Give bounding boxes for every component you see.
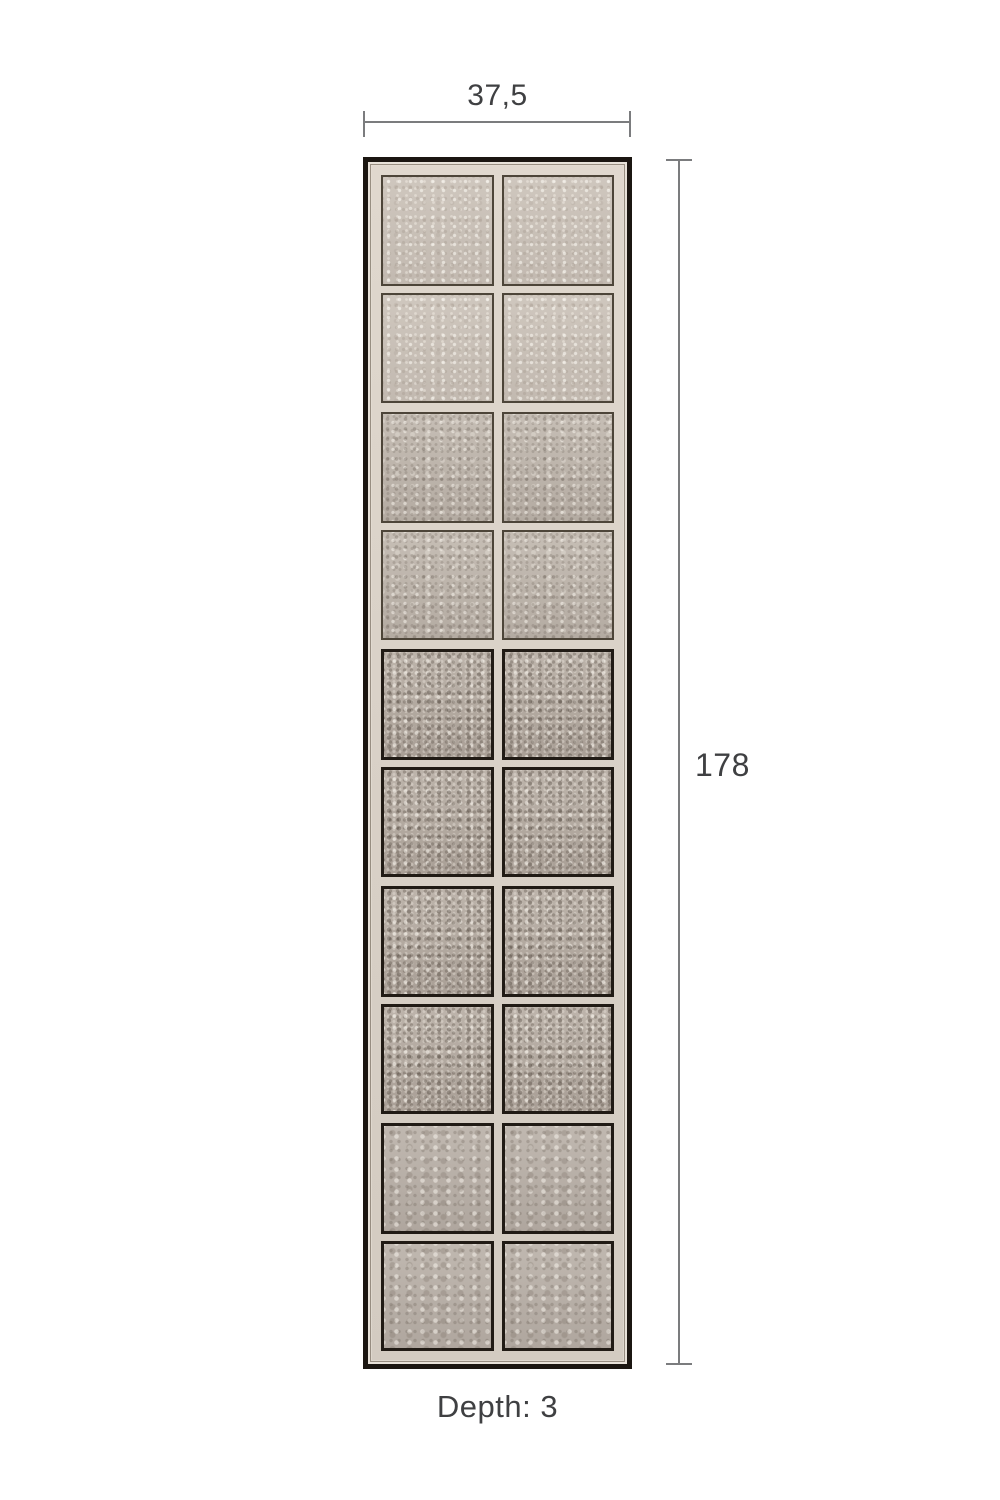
- mirror-pane: [502, 1241, 615, 1352]
- mirror-pane: [381, 293, 494, 404]
- mirror-pane: [381, 649, 494, 760]
- panel-section: [381, 649, 614, 877]
- width-dimension-label: 37,5: [364, 80, 631, 112]
- mirror-pane: [381, 886, 494, 997]
- pane-row: [381, 175, 614, 286]
- mirror-pane: [502, 412, 615, 523]
- mirror-pane: [502, 1123, 615, 1234]
- panel-section: [381, 412, 614, 640]
- diagram-canvas: 37,5 178 Depth: 3: [0, 0, 1000, 1500]
- mirror-pane: [502, 1004, 615, 1115]
- mirror-pane: [381, 530, 494, 641]
- height-dimension-line: [678, 160, 680, 1365]
- width-dimension-tick-right: [629, 111, 631, 137]
- pane-row: [381, 1004, 614, 1115]
- depth-dimension-label: Depth: 3: [339, 1391, 656, 1423]
- mirror-pane: [502, 886, 615, 997]
- mirror-panel: [363, 157, 632, 1369]
- pane-row: [381, 1123, 614, 1234]
- mirror-pane: [502, 530, 615, 641]
- height-dimension-tick-top: [666, 159, 692, 161]
- height-dimension-label: 178: [695, 749, 750, 781]
- mirror-pane: [381, 1241, 494, 1352]
- mirror-pane: [381, 767, 494, 878]
- panel-grid: [381, 175, 614, 1351]
- pane-row: [381, 649, 614, 760]
- panel-section: [381, 1123, 614, 1351]
- pane-row: [381, 767, 614, 878]
- panel-section: [381, 175, 614, 403]
- pane-row: [381, 412, 614, 523]
- mirror-pane: [381, 412, 494, 523]
- width-dimension-line: [364, 121, 631, 123]
- mirror-pane: [381, 1004, 494, 1115]
- mirror-pane: [502, 175, 615, 286]
- mirror-pane: [502, 293, 615, 404]
- height-dimension-tick-bottom: [666, 1363, 692, 1365]
- pane-row: [381, 886, 614, 997]
- mirror-pane: [502, 767, 615, 878]
- mirror-pane: [381, 175, 494, 286]
- width-dimension-tick-left: [363, 111, 365, 137]
- pane-row: [381, 1241, 614, 1352]
- panel-section: [381, 886, 614, 1114]
- mirror-pane: [381, 1123, 494, 1234]
- mirror-pane: [502, 649, 615, 760]
- pane-row: [381, 530, 614, 641]
- pane-row: [381, 293, 614, 404]
